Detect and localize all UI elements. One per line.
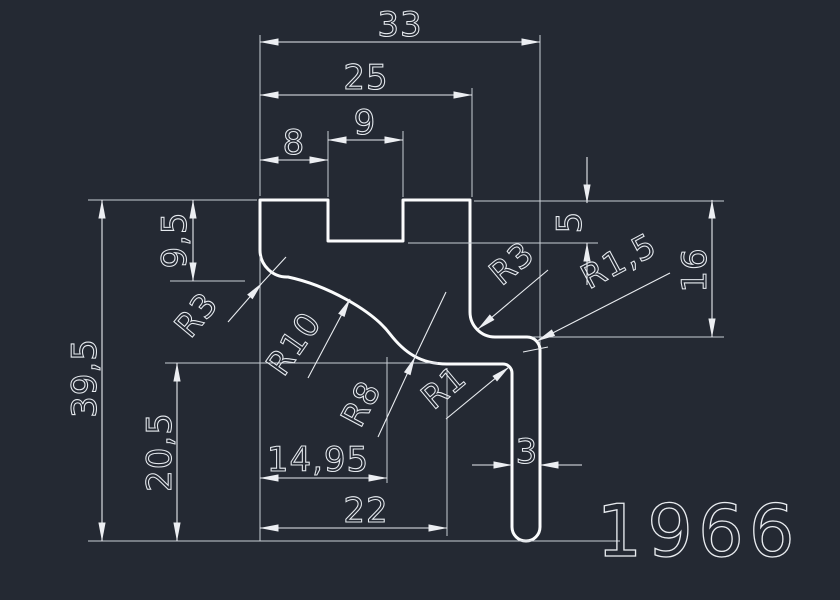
- part-number: 1966: [596, 489, 799, 573]
- leader-r3-left-overshoot: [262, 257, 286, 283]
- dim-label-25: 25: [343, 58, 388, 98]
- dim-label-39-5: 39,5: [65, 338, 105, 418]
- leader-r8-overshoot: [415, 292, 446, 357]
- cad-viewport: 33 25 9 8 9,5 5 16 39,5 20,5 14,95 22 3 …: [0, 0, 840, 600]
- radius-label-r1: R1: [413, 357, 473, 416]
- dim-label-3: 3: [516, 432, 539, 472]
- radius-label-r3-left: R3: [166, 284, 225, 344]
- radius-label-r3-right: R3: [481, 233, 541, 292]
- dim-label-33: 33: [377, 5, 422, 45]
- dim-label-5: 5: [550, 211, 590, 234]
- cad-drawing-canvas: 33 25 9 8 9,5 5 16 39,5 20,5 14,95 22 3 …: [0, 0, 840, 600]
- leader-r3-left: [228, 283, 262, 322]
- dimension-labels: 33 25 9 8 9,5 5 16 39,5 20,5 14,95 22 3 …: [65, 5, 715, 531]
- dim-label-9-5: 9,5: [155, 211, 195, 268]
- dim-label-20-5: 20,5: [140, 412, 180, 492]
- dim-label-16: 16: [675, 247, 715, 292]
- radius-label-r1-5: R1,5: [574, 225, 662, 297]
- dim-label-22: 22: [343, 491, 388, 531]
- radius-label-r10: R10: [258, 304, 329, 382]
- radius-label-r8: R8: [333, 374, 389, 433]
- extension-lines: [88, 35, 724, 541]
- dim-label-9: 9: [354, 103, 377, 143]
- dim-label-14-95: 14,95: [267, 440, 369, 480]
- dim-label-8: 8: [283, 123, 306, 163]
- leader-r1-5-tick: [523, 347, 548, 352]
